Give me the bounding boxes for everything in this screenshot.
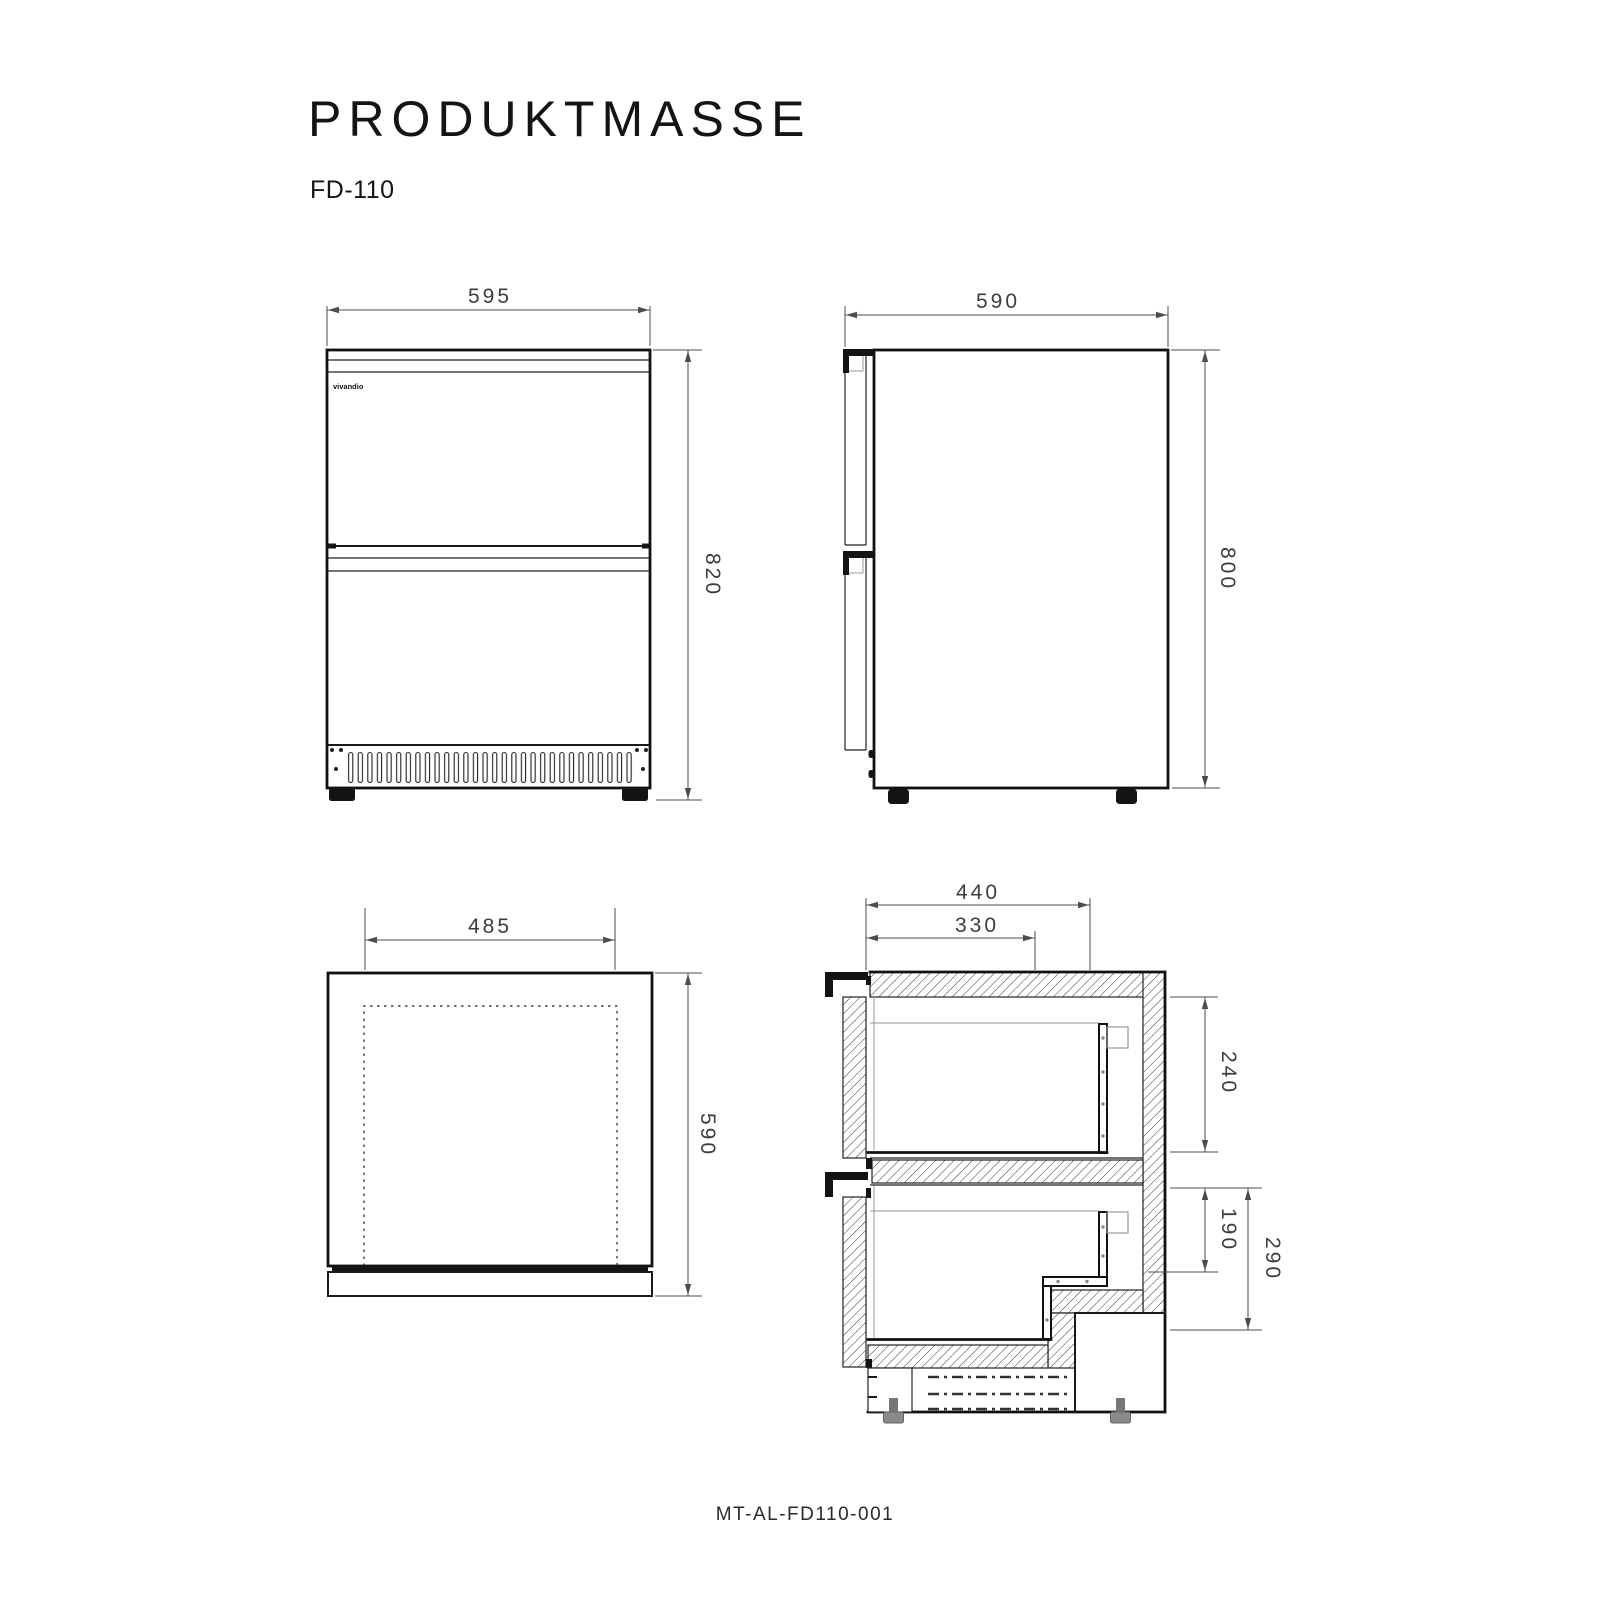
dim-label-front-height: 820 (701, 553, 724, 597)
side-height-dimension: 800 (1171, 350, 1239, 788)
divider-end-cap (642, 544, 650, 549)
side-view: 590 800 (843, 290, 1239, 804)
side-upper-door (843, 349, 873, 545)
side-lower-door (843, 551, 873, 750)
side-depth-dimension: 590 (845, 290, 1168, 347)
dim-label-side-depth: 590 (976, 290, 1020, 313)
section-upper-door-panel (843, 997, 866, 1158)
section-seal-block (866, 1359, 872, 1368)
model-number: FD-110 (310, 176, 395, 204)
section-rear-wall (1143, 972, 1165, 1313)
side-body-outline (874, 350, 1168, 788)
section-seal-block (866, 1158, 872, 1169)
front-left-foot (329, 788, 355, 801)
section-seal-block (866, 976, 871, 985)
dim-label-section-lower-height: 290 (1261, 1237, 1284, 1281)
dim-label-top-inner-width: 485 (468, 915, 512, 938)
side-front-foot (888, 789, 909, 804)
compressor-bay-outline (1075, 1313, 1165, 1412)
section-mid-shelf (872, 1160, 1143, 1183)
section-depth-drawer-dimension: 330 (866, 914, 1035, 970)
top-door-gap-strip (332, 1267, 648, 1272)
front-height-dimension: 820 (653, 350, 724, 800)
front-vent-grille (346, 752, 635, 785)
section-upper-door-grip (825, 972, 868, 997)
front-view: vivandio 595 820 (327, 285, 724, 801)
upper-drawer-back-rail (1099, 1024, 1128, 1153)
lower-door-grip-profile (843, 551, 873, 575)
front-width-dimension: 595 (327, 285, 650, 346)
dim-label-section-depth-total: 440 (956, 881, 1000, 904)
top-inner-width-dimension: 485 (365, 908, 615, 970)
dim-label-section-depth-drawer: 330 (955, 914, 999, 937)
top-view: 485 590 (328, 908, 719, 1296)
top-depth-dimension: 590 (655, 973, 719, 1296)
section-lower-door-grip (825, 1172, 868, 1197)
section-seal-block (866, 1188, 871, 1198)
side-hinge-bump (869, 750, 875, 758)
dim-label-section-upper-height: 240 (1217, 1051, 1240, 1095)
top-door-front-band (328, 1272, 652, 1296)
side-hinge-bump (869, 770, 875, 778)
section-vent-rows (928, 1377, 1068, 1409)
technical-drawing-page: PRODUKTMASSE FD-110 vivandio 595 (0, 0, 1600, 1600)
section-lower-door-panel (843, 1197, 866, 1367)
divider-end-cap (328, 544, 336, 549)
dim-label-top-depth: 590 (696, 1113, 719, 1157)
section-top-wall (870, 972, 1165, 997)
drawing-svg: PRODUKTMASSE FD-110 vivandio 595 (0, 0, 1600, 1600)
section-step-horizontal (1048, 1290, 1143, 1313)
upper-door-grip-profile (843, 349, 873, 373)
brand-logo: vivandio (333, 382, 364, 391)
front-cabinet-outline (327, 350, 650, 788)
dim-label-side-height: 800 (1216, 547, 1239, 591)
document-number: MT-AL-FD110-001 (716, 1504, 894, 1525)
section-view: 440 330 240 190 (825, 881, 1284, 1423)
top-body-outline (328, 973, 652, 1266)
dim-label-section-lower-rear-height: 190 (1217, 1208, 1240, 1252)
section-upper-height-dimension: 240 (1170, 997, 1240, 1152)
front-right-foot (622, 788, 648, 801)
side-rear-foot (1116, 789, 1137, 804)
page-title: PRODUKTMASSE (308, 91, 812, 147)
section-feet (884, 1398, 1131, 1423)
section-bottom-wall (868, 1345, 1048, 1368)
dim-label-front-width: 595 (468, 285, 512, 308)
